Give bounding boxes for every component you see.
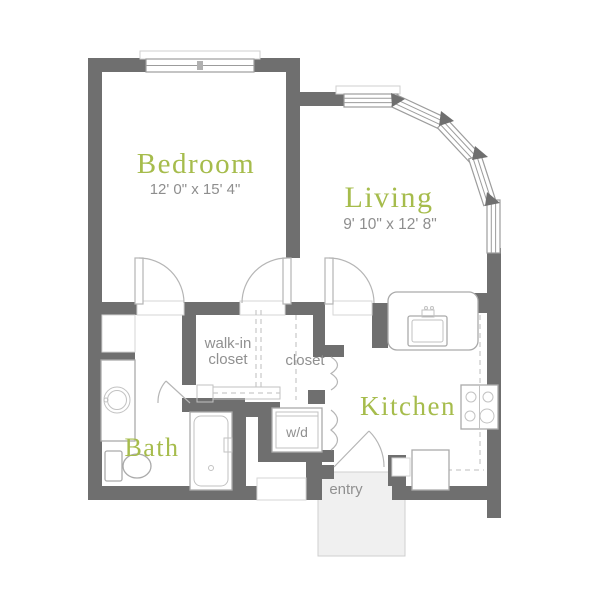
wall-kitchen-stub [372,303,388,348]
living-door-swing [329,258,374,303]
bedroom-door1-leaf [135,258,143,304]
bedroom-door2-swing [242,258,287,303]
bath-fixtures [101,360,232,490]
living-door-threshold [333,301,372,315]
entry-door-swing [369,431,384,467]
bedroom-label: Bedroom [137,148,255,180]
kitchen-label: Kitchen [360,391,456,421]
bath-door-swing [158,381,166,403]
wall-entry-hinge [318,465,334,479]
wall-shower-right [232,412,246,492]
living-dimensions: 9' 10" x 12' 8" [343,216,437,233]
bay-facet-5 [487,200,500,253]
wall-wd-left [258,404,272,452]
shower-stall-icon [190,412,232,490]
walkin-closet-label-line2: closet [208,351,248,368]
bay-sill [336,86,400,94]
entry-label: entry [329,481,363,498]
bedroom-door2-leaf [283,258,291,304]
wall-hall-row-1 [88,302,137,315]
wall-right [487,248,501,518]
wall-closet-right-upper [313,308,325,348]
wd-label: w/d [285,424,308,440]
toilet-tank-icon [105,451,122,481]
wall-bedroom-living-divider [286,58,300,258]
window-mullion [197,61,203,70]
bay-facet-1 [344,94,398,107]
bedroom-window [140,51,260,72]
wall-closet-bottom [308,390,325,404]
floor-plan: Bedroom 12' 0" x 15' 4" Living 9' 10" x … [0,0,600,600]
bedroom-door1-swing [139,258,184,303]
living-label: Living [345,181,434,214]
bath-label: Bath [124,433,179,462]
window-sill [140,51,260,59]
walkin-closet-label-line1: walk-in [204,335,252,352]
wall-left [88,58,102,500]
living-door-leaf [325,258,333,304]
hall-step [257,478,306,500]
wd-bifold-door [331,410,338,450]
bedroom-dimensions: 12' 0" x 15' 4" [150,181,241,198]
bedroom-door1-threshold [137,301,184,315]
closet-bifold-door [331,357,338,390]
closet-label: closet [285,352,325,369]
bedroom-door2-threshold [240,301,285,315]
linen-niche [102,315,135,352]
kitchen-niche [392,458,410,476]
refrigerator-icon [412,450,449,490]
entry-door-leaf [334,431,369,467]
wall-top-left [88,58,146,72]
